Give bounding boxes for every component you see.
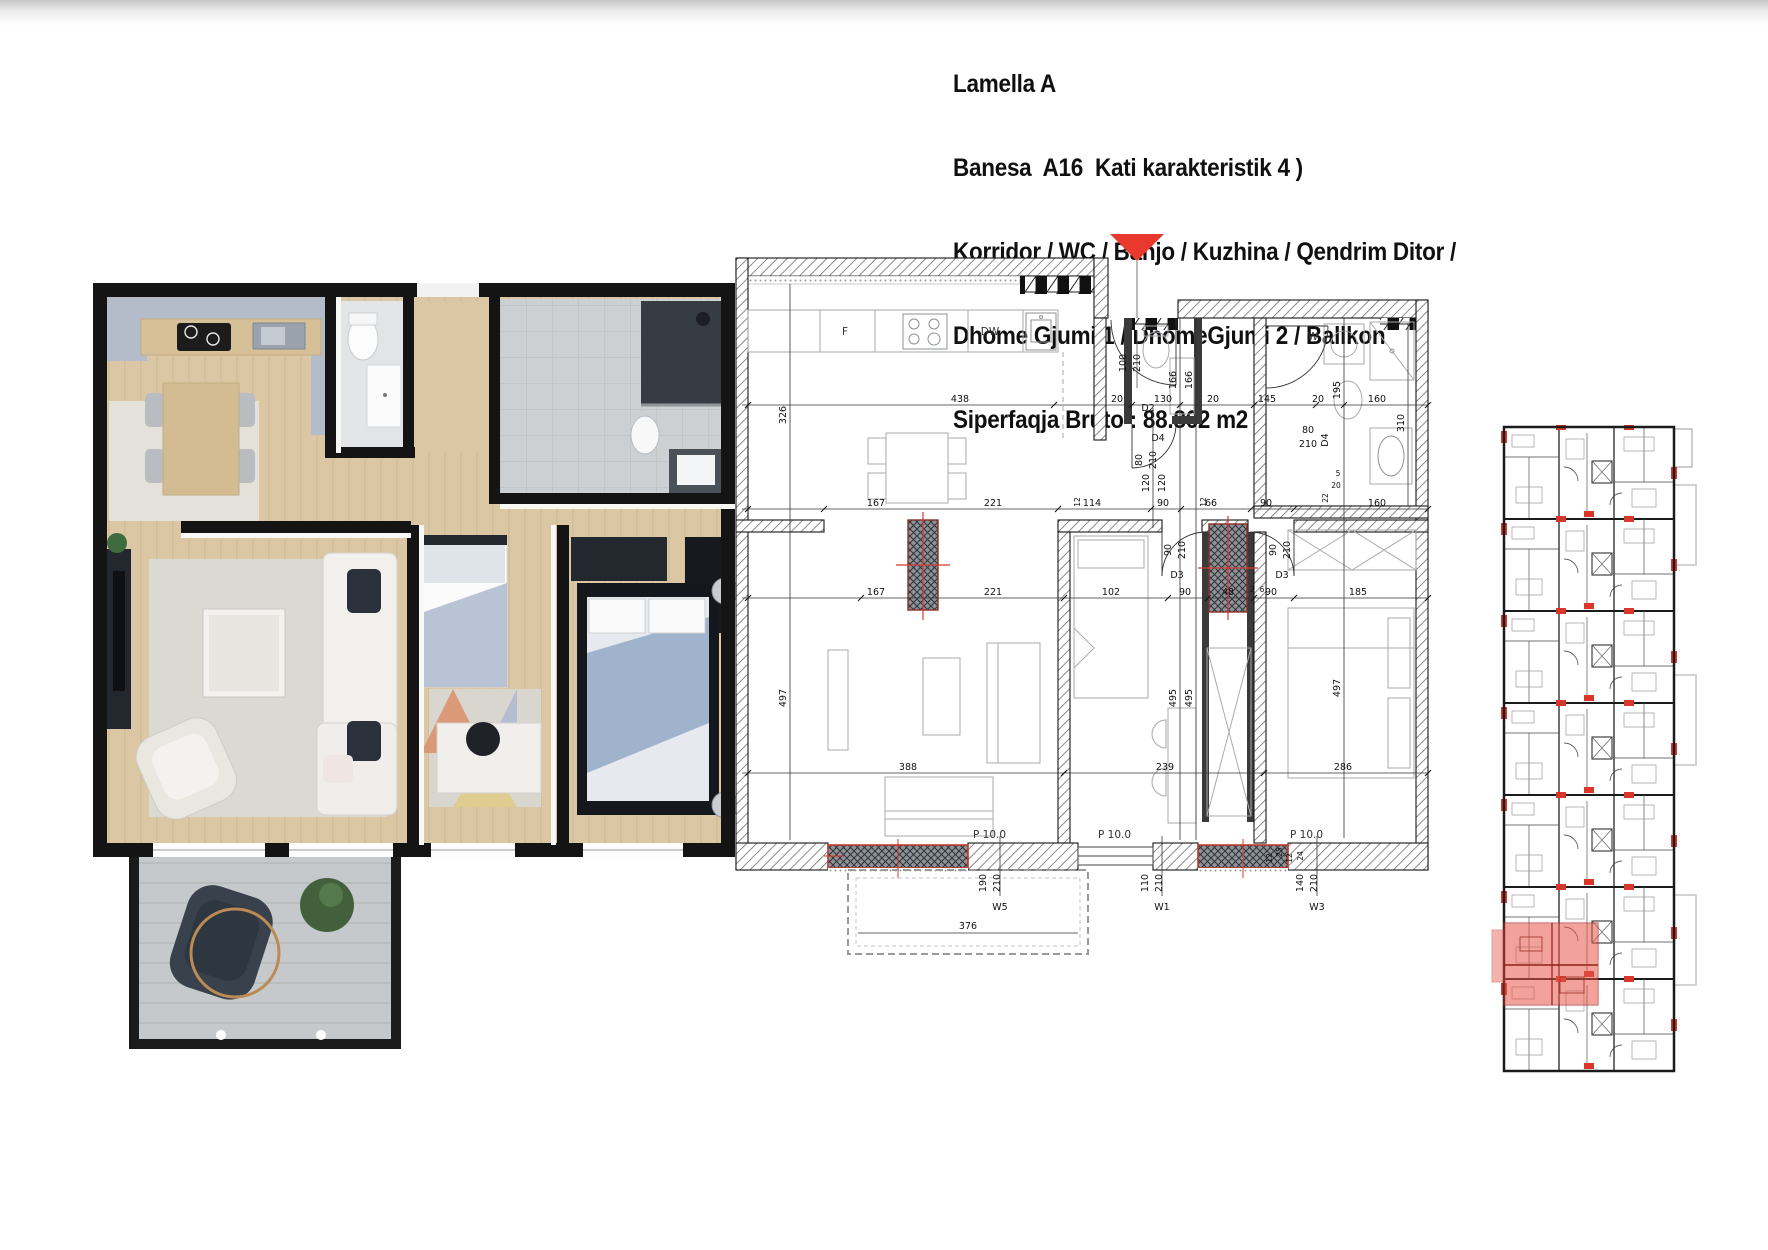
bath-basin-tech bbox=[1370, 428, 1412, 484]
entry-hall-floor bbox=[415, 301, 495, 453]
coffee-table-tech bbox=[923, 658, 960, 735]
svg-text:497: 497 bbox=[1332, 679, 1343, 697]
svg-text:12: 12 bbox=[1073, 497, 1082, 507]
svg-text:22: 22 bbox=[1321, 493, 1330, 503]
title-lamella: Lamella A bbox=[953, 70, 1456, 98]
svg-text:90: 90 bbox=[1179, 587, 1191, 598]
closet-tech bbox=[1207, 648, 1251, 816]
svg-text:12: 12 bbox=[1265, 853, 1274, 863]
svg-text:D4: D4 bbox=[1320, 433, 1331, 446]
svg-text:110: 110 bbox=[1140, 874, 1151, 892]
svg-text:286: 286 bbox=[1334, 762, 1352, 773]
svg-text:W5: W5 bbox=[992, 902, 1007, 913]
svg-text:140: 140 bbox=[1295, 874, 1306, 892]
svg-text:48: 48 bbox=[1222, 587, 1234, 598]
svg-text:166: 166 bbox=[1184, 371, 1195, 389]
svg-text:497: 497 bbox=[778, 689, 789, 707]
svg-text:D3: D3 bbox=[1170, 570, 1183, 581]
svg-text:210: 210 bbox=[1309, 874, 1320, 892]
dim-row-4: 388 239 286 bbox=[899, 762, 1352, 773]
svg-text:W: W bbox=[1308, 331, 1319, 343]
svg-text:210: 210 bbox=[992, 874, 1003, 892]
dim-balcony: 376 bbox=[959, 921, 977, 932]
title-unit: Banesa A16 Kati karakteristik 4 ) bbox=[953, 154, 1456, 182]
wc-toilet-tech bbox=[1143, 326, 1169, 368]
building-key-plan bbox=[1490, 425, 1700, 1085]
svg-text:120: 120 bbox=[1157, 474, 1168, 492]
svg-text:90: 90 bbox=[1268, 544, 1279, 556]
svg-text:24: 24 bbox=[1296, 851, 1305, 861]
window-sill-w3 bbox=[1198, 839, 1288, 878]
dim-row-3: 167 221 102 90 48 90 185 bbox=[867, 587, 1367, 598]
svg-text:130: 130 bbox=[1154, 394, 1172, 405]
svg-text:20: 20 bbox=[1331, 481, 1341, 490]
svg-text:310: 310 bbox=[1396, 414, 1407, 432]
desk-chair bbox=[466, 722, 500, 756]
tv-bench-tech bbox=[828, 650, 848, 750]
floor-plan-sheet: Lamella A Banesa A16 Kati karakteristik … bbox=[0, 0, 1768, 1250]
svg-text:90: 90 bbox=[1157, 498, 1169, 509]
svg-text:D2: D2 bbox=[1141, 403, 1154, 414]
svg-text:20: 20 bbox=[1312, 394, 1324, 405]
svg-text:12: 12 bbox=[1285, 853, 1294, 863]
svg-text:210: 210 bbox=[1299, 439, 1317, 450]
svg-text:210: 210 bbox=[1282, 541, 1293, 559]
dining-area bbox=[109, 383, 259, 521]
wardrobe-tech bbox=[1288, 530, 1416, 570]
dim-verticals: 326 497 166 166 195 310 120 120 495 495 … bbox=[778, 371, 1407, 707]
svg-text:120: 120 bbox=[1141, 474, 1152, 492]
svg-text:160: 160 bbox=[1368, 394, 1386, 405]
svg-text:114: 114 bbox=[1083, 498, 1101, 509]
highlighted-unit bbox=[1492, 923, 1598, 1005]
double-bed-tech bbox=[1288, 608, 1414, 778]
render-3d-plan bbox=[85, 253, 745, 1053]
svg-text:221: 221 bbox=[984, 587, 1002, 598]
sink-icon bbox=[1026, 313, 1056, 350]
double-bed bbox=[577, 583, 719, 815]
svg-text:2: 2 bbox=[1250, 585, 1255, 594]
svg-text:160: 160 bbox=[1368, 498, 1386, 509]
svg-text:190: 190 bbox=[978, 874, 989, 892]
svg-text:90: 90 bbox=[1260, 498, 1272, 509]
svg-text:80: 80 bbox=[1302, 425, 1314, 436]
svg-text:20: 20 bbox=[1111, 394, 1123, 405]
svg-text:166: 166 bbox=[1168, 371, 1179, 389]
tech-furniture bbox=[748, 310, 1416, 836]
svg-text:D4: D4 bbox=[1151, 433, 1164, 444]
single-bed-tech bbox=[1074, 536, 1148, 698]
svg-text:210: 210 bbox=[1154, 874, 1165, 892]
sofa bbox=[317, 553, 397, 815]
single-bed bbox=[421, 535, 507, 687]
svg-text:DW: DW bbox=[981, 326, 1000, 338]
tech-balcony: 376 bbox=[848, 870, 1088, 954]
svg-text:90: 90 bbox=[1163, 544, 1174, 556]
svg-text:80: 80 bbox=[1134, 454, 1145, 466]
svg-text:210: 210 bbox=[1148, 451, 1159, 469]
svg-text:F: F bbox=[842, 326, 848, 338]
shower-tech bbox=[1370, 322, 1414, 380]
svg-text:221: 221 bbox=[984, 498, 1002, 509]
svg-text:D3: D3 bbox=[1275, 570, 1288, 581]
svg-text:438: 438 bbox=[951, 394, 969, 405]
structural-pier-living bbox=[896, 512, 950, 620]
svg-text:20: 20 bbox=[1207, 394, 1219, 405]
svg-text:102: 102 bbox=[1102, 587, 1120, 598]
svg-text:90: 90 bbox=[1265, 587, 1277, 598]
svg-text:326: 326 bbox=[778, 406, 789, 424]
svg-text:145: 145 bbox=[1258, 394, 1276, 405]
svg-text:210: 210 bbox=[1132, 354, 1143, 372]
svg-text:167: 167 bbox=[867, 498, 885, 509]
tech-dimension-lines bbox=[742, 284, 1431, 840]
plant-small bbox=[107, 533, 127, 553]
balcony-3d bbox=[129, 857, 401, 1049]
svg-text:P 10.0: P 10.0 bbox=[1290, 829, 1323, 841]
svg-text:5: 5 bbox=[1336, 469, 1341, 478]
kitchen-counter bbox=[141, 319, 321, 355]
dining-table-tech bbox=[868, 433, 966, 503]
svg-text:W1: W1 bbox=[1154, 902, 1169, 913]
svg-text:185: 185 bbox=[1349, 587, 1367, 598]
svg-text:167: 167 bbox=[867, 587, 885, 598]
tech-dimension-labels: 438 20 130 20 145 20 160 167 221 114 90 … bbox=[778, 326, 1407, 913]
svg-text:195: 195 bbox=[1332, 381, 1343, 399]
svg-text:239: 239 bbox=[1156, 762, 1174, 773]
svg-text:100: 100 bbox=[1118, 354, 1129, 372]
sofa-tech bbox=[885, 643, 1040, 836]
living-room bbox=[107, 533, 397, 826]
svg-text:P 10.0: P 10.0 bbox=[1098, 829, 1131, 841]
dim-row-1: 438 20 130 20 145 20 160 bbox=[951, 394, 1386, 405]
top-gradient bbox=[0, 0, 1768, 26]
stove-icon bbox=[903, 314, 947, 349]
technical-plan: 376 bbox=[728, 228, 1440, 963]
svg-text:25: 25 bbox=[1275, 847, 1284, 857]
svg-text:495: 495 bbox=[1168, 689, 1179, 707]
svg-text:W3: W3 bbox=[1309, 902, 1324, 913]
svg-text:495: 495 bbox=[1184, 689, 1195, 707]
svg-text:P 10.0: P 10.0 bbox=[973, 829, 1006, 841]
window-sill-w5 bbox=[824, 839, 968, 878]
svg-text:388: 388 bbox=[899, 762, 917, 773]
svg-text:210: 210 bbox=[1177, 541, 1188, 559]
bathroom bbox=[499, 299, 725, 499]
svg-text:6: 6 bbox=[1260, 585, 1265, 594]
bedroom-2 bbox=[571, 537, 738, 818]
svg-text:12: 12 bbox=[1199, 497, 1208, 507]
area-labels: P 10.0 P 10.0 P 10.0 bbox=[973, 829, 1323, 841]
wc-room bbox=[335, 301, 413, 453]
